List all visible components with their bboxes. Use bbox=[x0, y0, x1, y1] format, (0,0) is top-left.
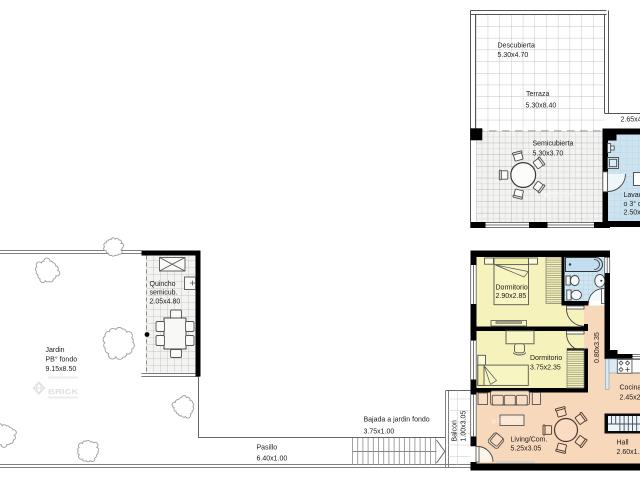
svg-text:Descubierta: Descubierta bbox=[498, 43, 535, 50]
svg-text:9.15x8.50: 9.15x8.50 bbox=[46, 366, 77, 373]
svg-text:5.30x3.70: 5.30x3.70 bbox=[533, 151, 564, 158]
svg-text:◆BRICK: ◆BRICK bbox=[542, 192, 574, 199]
svg-text:5.30x8.40: 5.30x8.40 bbox=[526, 103, 557, 110]
svg-text:Lavadero: Lavadero bbox=[624, 192, 640, 199]
svg-text:Dormitorio: Dormitorio bbox=[530, 355, 562, 362]
svg-text:2.60x1.20: 2.60x1.20 bbox=[617, 449, 640, 456]
svg-text:Pasillo: Pasillo bbox=[257, 445, 278, 452]
svg-text:Living/Com.: Living/Com. bbox=[511, 437, 548, 444]
svg-text:semicub.: semicub. bbox=[150, 290, 178, 297]
svg-text:Cocina: Cocina bbox=[620, 385, 640, 392]
svg-text:Quincho: Quincho bbox=[150, 281, 176, 288]
svg-text:◆BRICK: ◆BRICK bbox=[490, 418, 522, 425]
svg-text:2.50x3.50: 2.50x3.50 bbox=[624, 210, 640, 217]
svg-text:BRICK: BRICK bbox=[48, 389, 79, 396]
svg-text:Bajada a jardin fondo: Bajada a jardin fondo bbox=[364, 417, 430, 424]
svg-text:2.05x4.80: 2.05x4.80 bbox=[150, 299, 181, 306]
svg-text:Balcon: Balcon bbox=[452, 420, 459, 442]
svg-text:0.80x3.35: 0.80x3.35 bbox=[594, 332, 601, 363]
svg-text:6.40x1.00: 6.40x1.00 bbox=[257, 456, 288, 463]
svg-text:Jardin: Jardin bbox=[46, 347, 65, 354]
svg-text:2.65x4.00: 2.65x4.00 bbox=[621, 117, 640, 124]
svg-text:o 3° dorm.: o 3° dorm. bbox=[624, 200, 640, 208]
svg-text:3.75x2.35: 3.75x2.35 bbox=[530, 365, 561, 372]
svg-text:Semicubierta: Semicubierta bbox=[533, 141, 574, 148]
svg-text:PB° fondo: PB° fondo bbox=[46, 356, 78, 364]
svg-text:Dormitorio: Dormitorio bbox=[496, 285, 528, 292]
svg-text:2.45x2.60: 2.45x2.60 bbox=[620, 395, 640, 402]
svg-text:2.90x2.85: 2.90x2.85 bbox=[496, 293, 527, 300]
svg-text:Terraza: Terraza bbox=[526, 91, 549, 98]
svg-text:5.30x4.70: 5.30x4.70 bbox=[498, 52, 529, 59]
svg-text:5.25x3.05: 5.25x3.05 bbox=[511, 446, 542, 453]
svg-text:3.75x1.00: 3.75x1.00 bbox=[364, 429, 395, 436]
svg-text:1.00x3.05: 1.00x3.05 bbox=[461, 411, 468, 442]
svg-text:Hall: Hall bbox=[617, 440, 630, 447]
